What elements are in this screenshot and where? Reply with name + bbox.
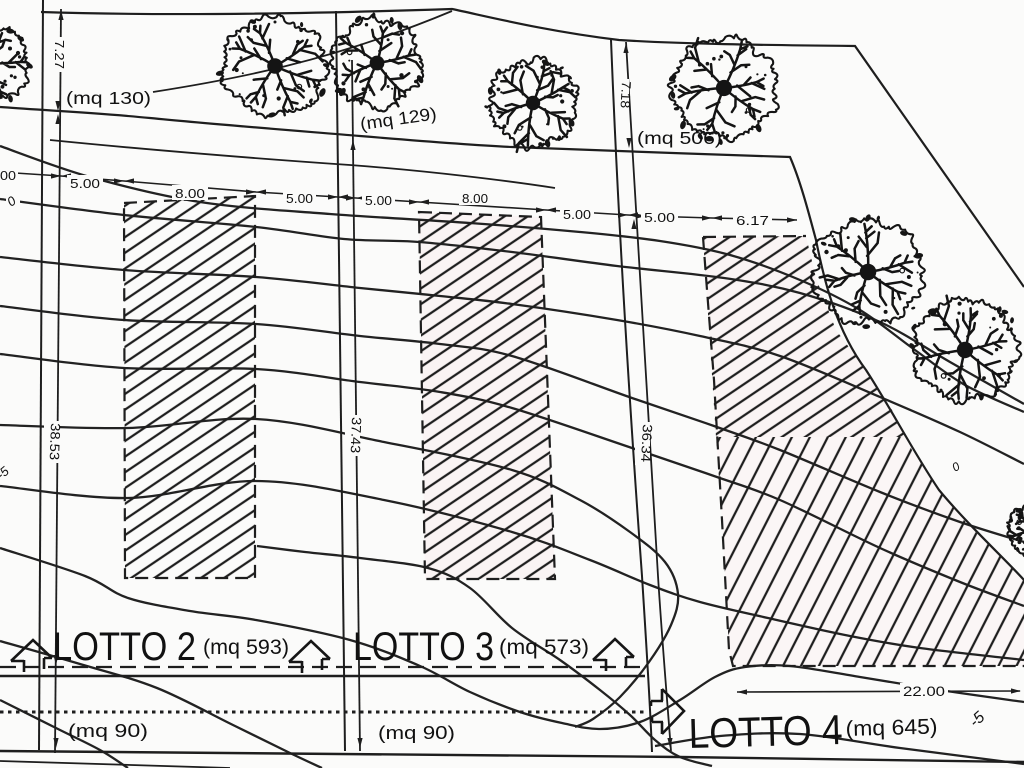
svg-text:5.00: 5.00 (644, 210, 675, 225)
svg-text:(mq 130): (mq 130) (66, 88, 151, 108)
svg-text:LOTTO 2: LOTTO 2 (53, 625, 196, 669)
svg-text:7.27: 7.27 (52, 40, 67, 69)
svg-text:38.53: 38.53 (47, 423, 63, 461)
svg-text:(mq 645): (mq 645) (845, 714, 938, 740)
svg-text:6.17: 6.17 (736, 213, 769, 228)
svg-text:00: 00 (0, 168, 16, 183)
svg-text:37.43: 37.43 (348, 417, 364, 454)
svg-text:(mq 573): (mq 573) (499, 635, 589, 659)
svg-text:LOTTO 4: LOTTO 4 (688, 706, 843, 757)
svg-text:22.00: 22.00 (903, 684, 945, 699)
svg-text:(mq 593): (mq 593) (203, 635, 289, 659)
svg-text:36.34: 36.34 (638, 424, 655, 463)
svg-text:5.00: 5.00 (563, 207, 591, 222)
svg-text:(mq 90): (mq 90) (378, 722, 455, 743)
svg-text:LOTTO 3: LOTTO 3 (353, 625, 494, 669)
svg-text:8.00: 8.00 (175, 186, 205, 201)
svg-text:5.00: 5.00 (70, 176, 100, 191)
svg-text:(mq 90): (mq 90) (68, 720, 148, 741)
svg-text:5.00: 5.00 (365, 193, 392, 208)
svg-text:7.18: 7.18 (618, 81, 634, 109)
svg-text:5.00: 5.00 (286, 191, 313, 206)
svg-text:(mq 506): (mq 506) (637, 128, 722, 148)
svg-text:8.00: 8.00 (462, 191, 488, 206)
